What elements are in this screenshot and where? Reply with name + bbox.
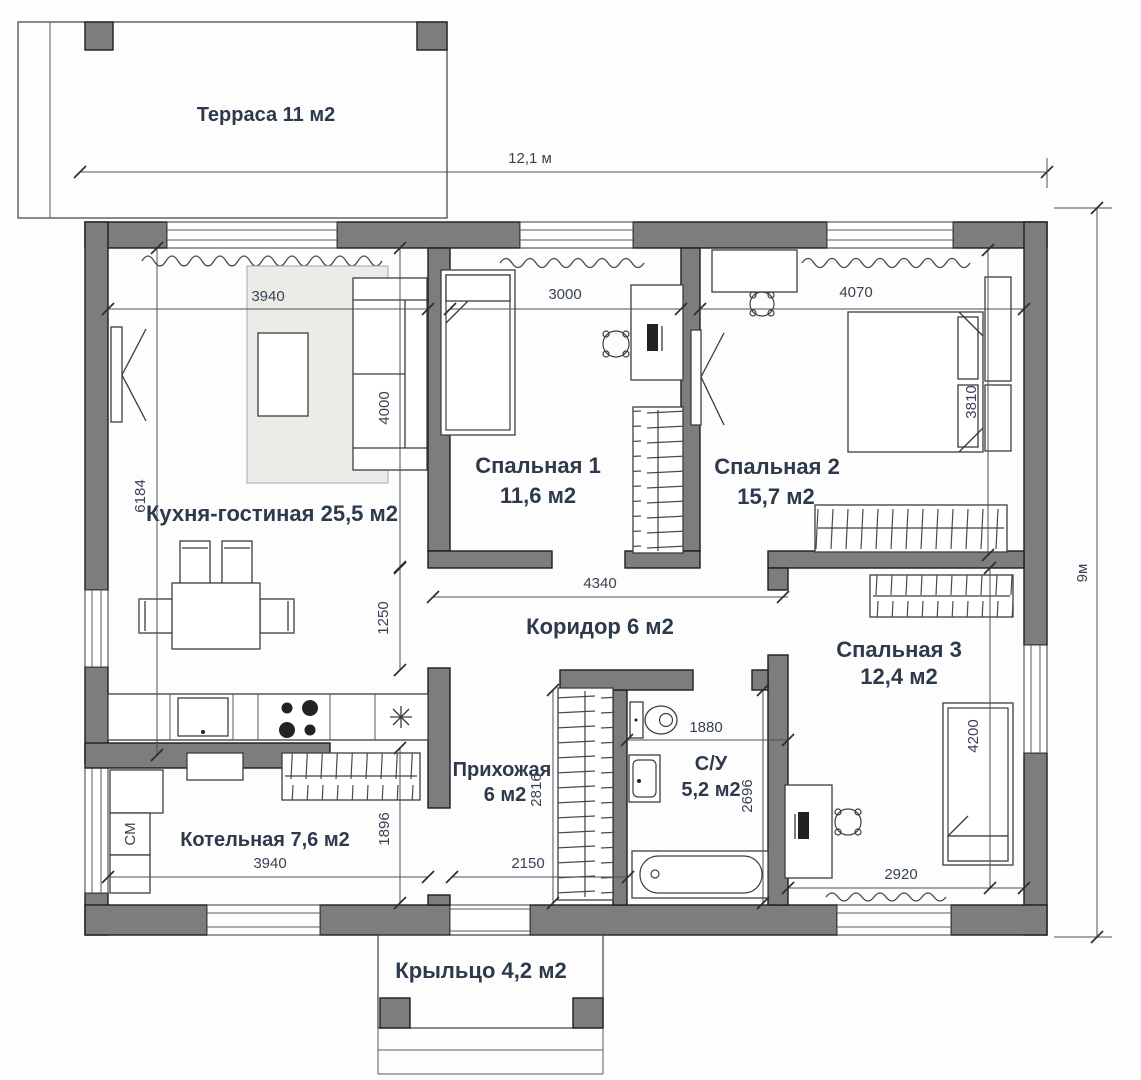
floor-plan-drawing: Терраса 11 м2 <box>0 0 1141 1080</box>
svg-text:1896: 1896 <box>376 812 393 845</box>
window-kitchen-left <box>85 590 108 667</box>
dim-boiler-width: 3940 <box>102 855 434 883</box>
terrace-label: Терраса 11 м2 <box>197 104 336 126</box>
dim-total-height: 9м <box>1054 202 1112 943</box>
dim-total-width: 12,1 м <box>74 150 1053 188</box>
dim-kitchen-opening: 1250 <box>375 562 406 676</box>
monitor-icon <box>647 324 658 351</box>
svg-text:2150: 2150 <box>511 855 544 872</box>
corridor: Коридор 6 м2 <box>526 614 674 639</box>
kitchen-label: Кухня-гостиная 25,5 м2 <box>146 501 398 526</box>
svg-text:12,1 м: 12,1 м <box>508 150 552 167</box>
floor-plan-page: Терраса 11 м2 <box>0 0 1141 1080</box>
window-bedroom3-bottom <box>837 905 951 935</box>
svg-text:3940: 3940 <box>253 855 286 872</box>
bed-double <box>848 277 1011 452</box>
tv-living <box>111 327 146 422</box>
bedroom1-name: Спальная 1 <box>475 453 601 478</box>
drying-rack <box>282 753 420 800</box>
boiler-cabinet <box>110 770 163 813</box>
monitor-icon <box>798 812 809 839</box>
svg-text:3810: 3810 <box>963 385 980 418</box>
svg-text:4070: 4070 <box>839 284 872 301</box>
porch-column <box>380 998 410 1028</box>
svg-text:9м: 9м <box>1074 564 1091 583</box>
washing-machine: СМ <box>110 813 150 855</box>
bathroom-name: С/У <box>695 753 728 775</box>
boiler-label: Котельная 7,6 м2 <box>180 829 350 851</box>
porch-column <box>573 998 603 1028</box>
boiler-room: СМ Котельная 7,6 м2 <box>110 753 420 893</box>
kitchen-living-room: Кухня-гостиная 25,5 м2 <box>108 266 428 740</box>
fridge-symbol <box>390 706 412 728</box>
wardrobe-3 <box>870 575 1013 617</box>
washing-machine-label: СМ <box>122 822 139 845</box>
desk-1 <box>631 285 683 380</box>
svg-text:4340: 4340 <box>583 575 616 592</box>
porch-steps <box>378 1028 603 1074</box>
svg-text:2816: 2816 <box>528 773 545 806</box>
bedroom3-name: Спальная 3 <box>836 637 962 662</box>
bed-single-1 <box>441 270 515 435</box>
porch: Крыльцо 4,2 м2 <box>378 935 603 1074</box>
svg-text:1250: 1250 <box>375 601 392 634</box>
wardrobe-1 <box>633 407 683 553</box>
terrace-column <box>85 22 113 50</box>
desk-3 <box>785 785 832 878</box>
svg-text:4200: 4200 <box>965 719 982 752</box>
desk-2 <box>712 250 797 292</box>
kitchen-counter <box>108 694 428 740</box>
bathtub <box>632 851 768 898</box>
window-bedroom1 <box>520 222 633 248</box>
bedroom-1: Спальная 1 11,6 м2 <box>441 270 683 553</box>
wardrobe-hallway <box>558 688 613 900</box>
terrace-column <box>417 22 447 50</box>
dim-hallway-depth: 2816 <box>528 684 559 909</box>
chair-1 <box>603 331 629 357</box>
svg-text:3940: 3940 <box>251 288 284 305</box>
window-kitchen <box>167 222 337 248</box>
boiler-shelf <box>187 753 243 780</box>
dim-corridor-width: 4340 <box>427 575 789 603</box>
svg-text:2920: 2920 <box>884 866 917 883</box>
dining-table <box>172 583 260 649</box>
tv-bedroom2 <box>691 330 724 425</box>
wardrobe-2 <box>815 505 1007 552</box>
corridor-label: Коридор 6 м2 <box>526 614 674 639</box>
bedroom2-area: 15,7 м2 <box>737 484 814 509</box>
svg-text:4000: 4000 <box>376 391 393 424</box>
window-bedroom3-right <box>1024 645 1047 753</box>
svg-text:1880: 1880 <box>689 719 722 736</box>
boiler-cabinet <box>110 855 150 893</box>
terrace: Терраса 11 м2 <box>18 22 447 218</box>
porch-label: Крыльцо 4,2 м2 <box>395 958 566 983</box>
window-boiler-bottom <box>207 905 320 935</box>
dining-set <box>139 541 294 649</box>
svg-text:3000: 3000 <box>548 286 581 303</box>
bedroom2-name: Спальная 2 <box>714 454 840 479</box>
bedroom1-area: 11,6 м2 <box>500 483 576 508</box>
hallway-area: 6 м2 <box>484 784 527 806</box>
svg-text:2696: 2696 <box>739 779 756 812</box>
bathroom-area: 5,2 м2 <box>681 779 740 801</box>
toilet <box>630 702 677 738</box>
washbasin <box>629 755 660 802</box>
coffee-table <box>258 333 308 416</box>
chair-2 <box>750 292 774 316</box>
chair-3 <box>835 809 861 835</box>
bedroom3-area: 12,4 м2 <box>860 664 937 689</box>
window-boiler-left <box>85 763 108 893</box>
sofa <box>353 278 427 470</box>
window-bedroom2 <box>827 222 953 248</box>
svg-text:6184: 6184 <box>132 479 149 512</box>
